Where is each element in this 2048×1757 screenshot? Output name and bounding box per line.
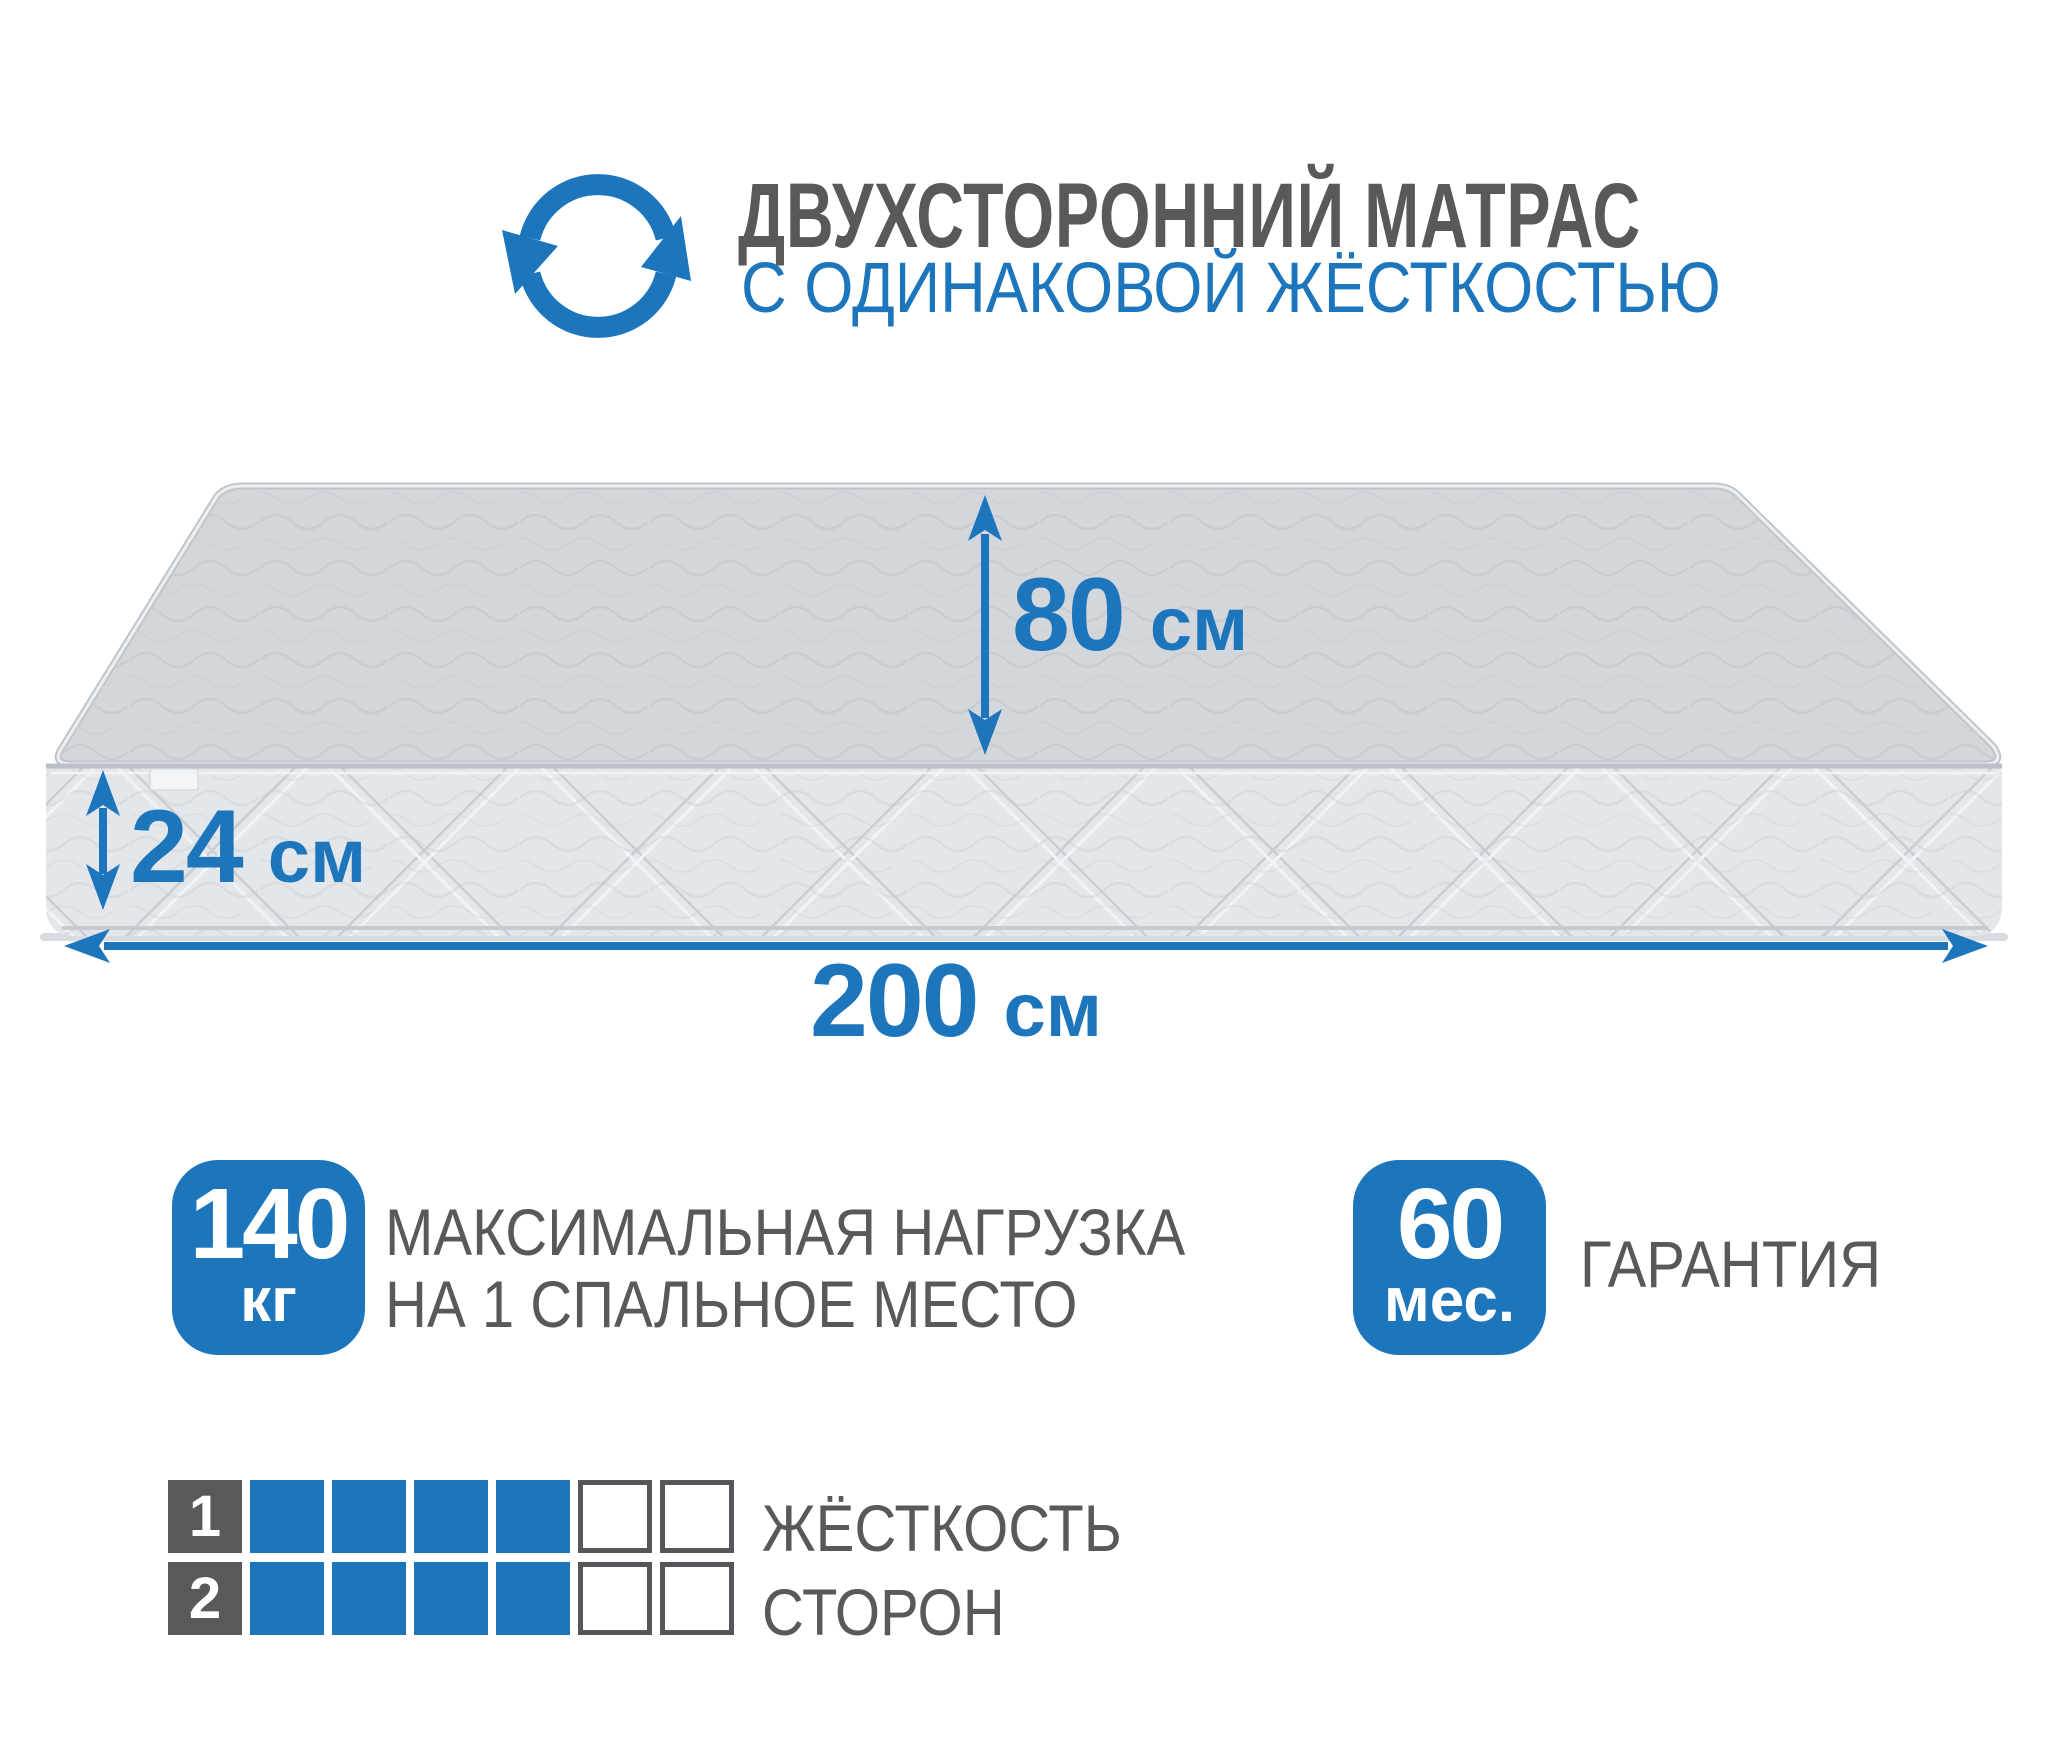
infographic-canvas: 80см 24см 200см ДВУХСТОРОННИЙ МАТРАС С О… [0,0,2048,1757]
hardness-cell [250,1480,324,1553]
hardness-side-number: 2 [168,1562,242,1635]
hardness-cell [414,1562,488,1635]
hardness-cell [496,1562,570,1635]
max-load-value: 140 [172,1176,365,1272]
hardness-cell [578,1562,652,1635]
hardness-row: 1 [168,1480,734,1553]
warranty-unit: мес. [1353,1270,1546,1332]
hardness-grid: 12 [168,1480,734,1644]
length-dim-label: 200см [810,943,1102,1059]
mattress-label-tag [150,769,198,790]
rotate-arc-bottom [530,274,666,327]
hardness-cell [332,1480,406,1553]
warranty-badge: 60 мес. [1353,1160,1546,1355]
hardness-cell [660,1480,734,1553]
hardness-row: 2 [168,1562,734,1635]
rotate-arc-top [530,185,666,238]
max-load-label-line2: НА 1 СПАЛЬНОЕ МЕСТО [385,1268,1185,1340]
hardness-label-line1: ЖЁСТКОСТЬ [762,1492,1122,1564]
page-subtitle: С ОДИНАКОВОЙ ЖЁСТКОСТЬЮ [741,253,1721,324]
rotate-flip-icon [502,185,691,328]
max-load-badge: 140 кг [172,1160,365,1355]
hardness-cell [414,1480,488,1553]
warranty-value: 60 [1353,1176,1546,1272]
hardness-label-line2: СТОРОН [762,1576,1005,1648]
hardness-cell [578,1480,652,1553]
hardness-cell [332,1562,406,1635]
length-dimension: 200см [64,929,1988,1059]
hardness-cell [250,1562,324,1635]
max-load-label-line1: МАКСИМАЛЬНАЯ НАГРУЗКА [385,1196,1185,1268]
warranty-label: ГАРАНТИЯ [1580,1228,1881,1300]
hardness-side-number: 1 [168,1480,242,1553]
hardness-cell [660,1562,734,1635]
max-load-label: МАКСИМАЛЬНАЯ НАГРУЗКА НА 1 СПАЛЬНОЕ МЕСТ… [385,1196,1185,1340]
hardness-cell [496,1480,570,1553]
